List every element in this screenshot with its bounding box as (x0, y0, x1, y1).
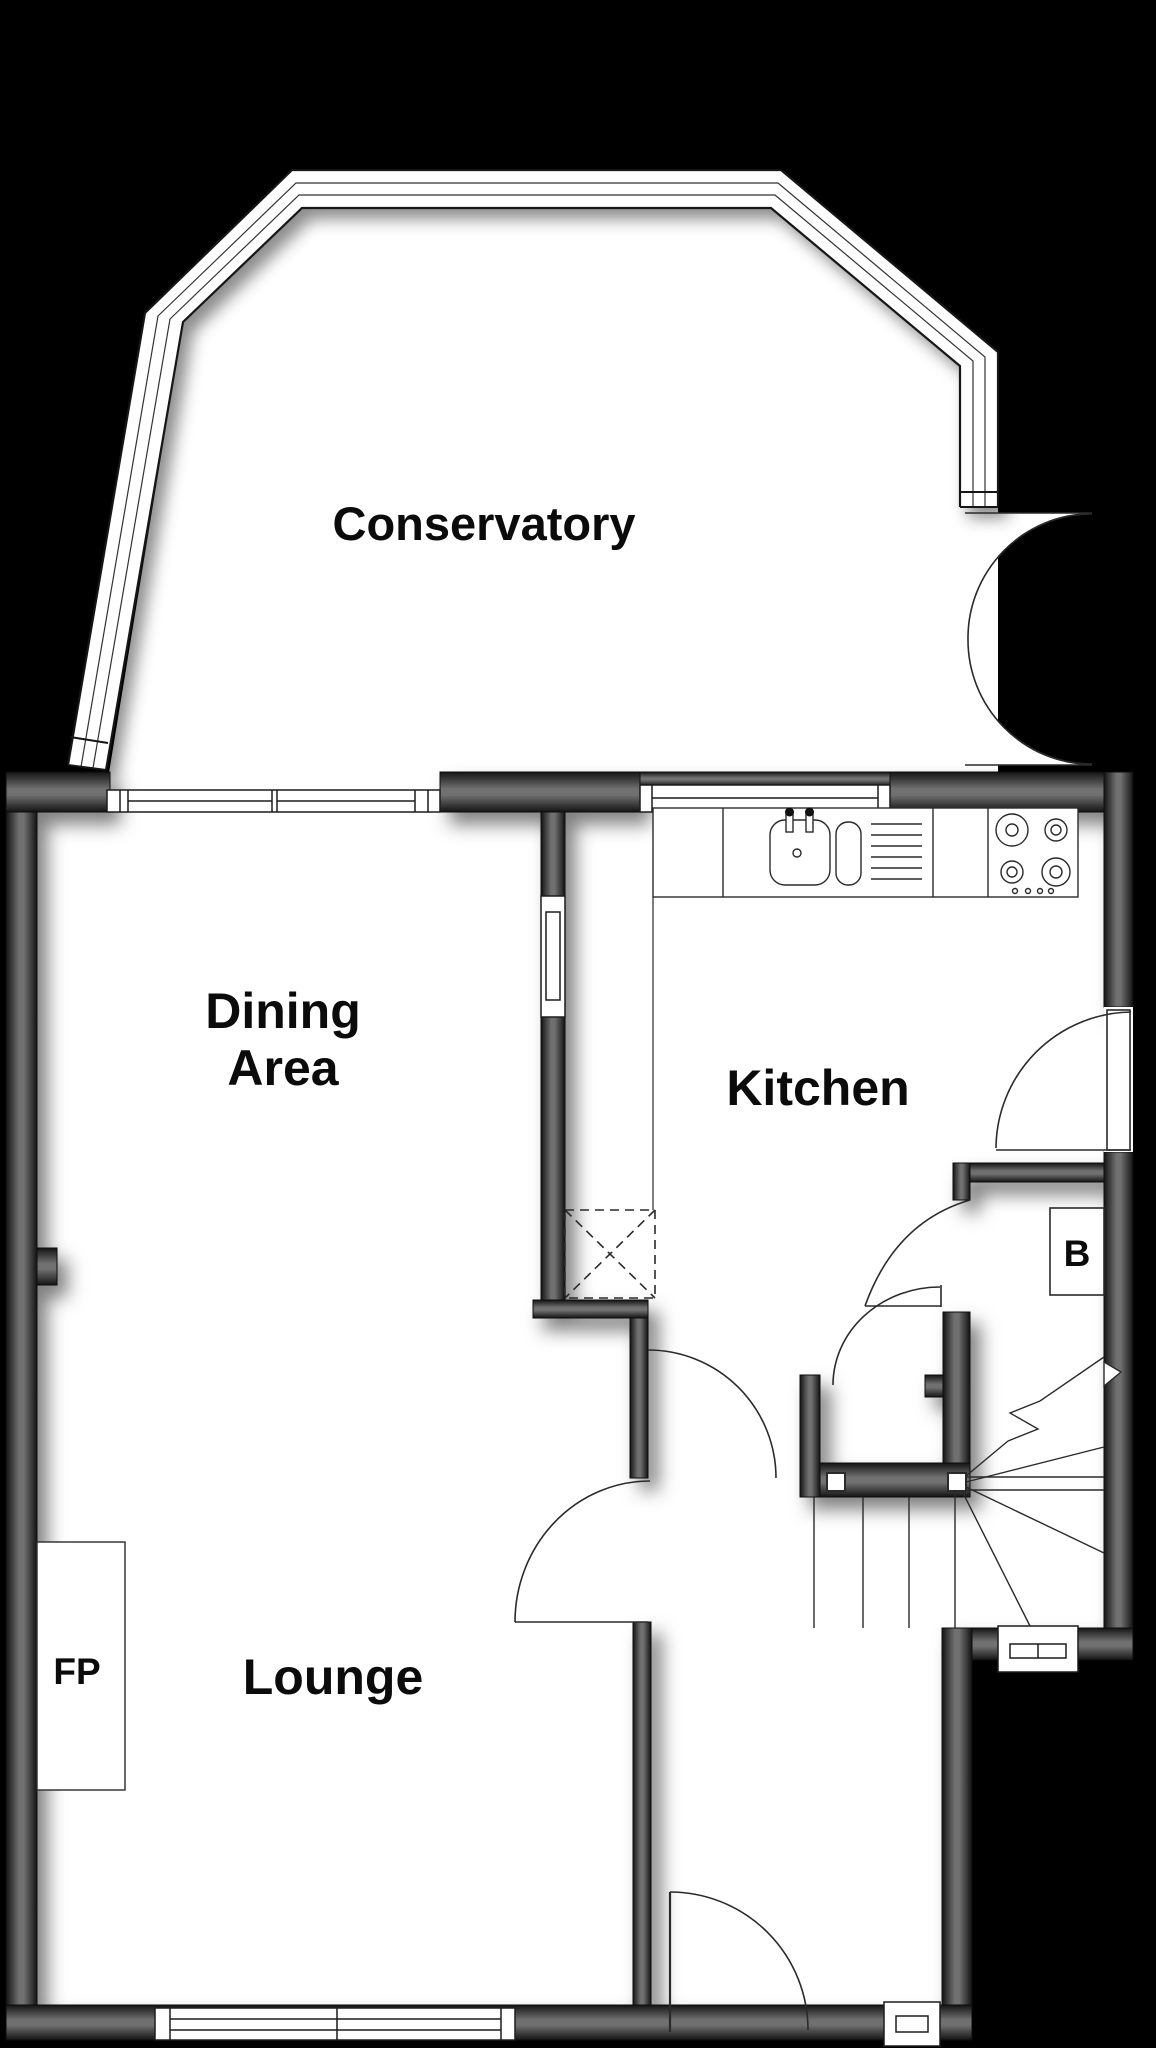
wall-lounge-east (633, 1622, 651, 2005)
wall-right-lower (1104, 1152, 1133, 1660)
back-door-opening (1104, 1007, 1133, 1152)
newel-post-left (827, 1473, 845, 1491)
newel-post-right (948, 1473, 966, 1491)
wall-top-b2 (640, 772, 890, 786)
wall-hall-top (953, 1163, 1104, 1182)
label-dining-2: Area (227, 1040, 339, 1096)
label-conservatory: Conservatory (333, 497, 636, 550)
wall-top-a (6, 772, 110, 812)
wall-hall-top-return (953, 1163, 970, 1200)
label-dining-1: Dining (205, 983, 361, 1039)
label-fireplace: FP (53, 1651, 100, 1692)
window-stairs (998, 1626, 1078, 1672)
kitchen-counter (653, 808, 1078, 897)
window-hall-small (884, 2002, 940, 2046)
wall-right-upper (1104, 772, 1133, 1007)
window-lounge (155, 2008, 515, 2040)
wall-cupboard-bottom (800, 1463, 970, 1497)
wall-right-bottom (942, 1628, 972, 2040)
window-dining-conservatory (107, 790, 440, 812)
wall-divider-dining-kitchen (541, 812, 565, 1300)
label-boiler: B (1064, 1233, 1091, 1274)
wall-top-b (440, 772, 640, 812)
label-lounge: Lounge (243, 1649, 424, 1705)
wall-top-c (890, 772, 1133, 812)
wall-hall-west (630, 1318, 648, 1478)
wall-jog (533, 1300, 648, 1318)
label-kitchen: Kitchen (726, 1060, 909, 1116)
wall-nib-left (37, 1248, 57, 1285)
wall-cupboard-right (943, 1312, 970, 1477)
wall-left (6, 772, 37, 2040)
serving-hatch-window (541, 896, 565, 1017)
wall-cupboard-pier (925, 1375, 943, 1397)
floor-plan: Conservatory Dining Area Kitchen Lounge … (0, 0, 1156, 2048)
wall-cupboard-left (800, 1375, 820, 1497)
